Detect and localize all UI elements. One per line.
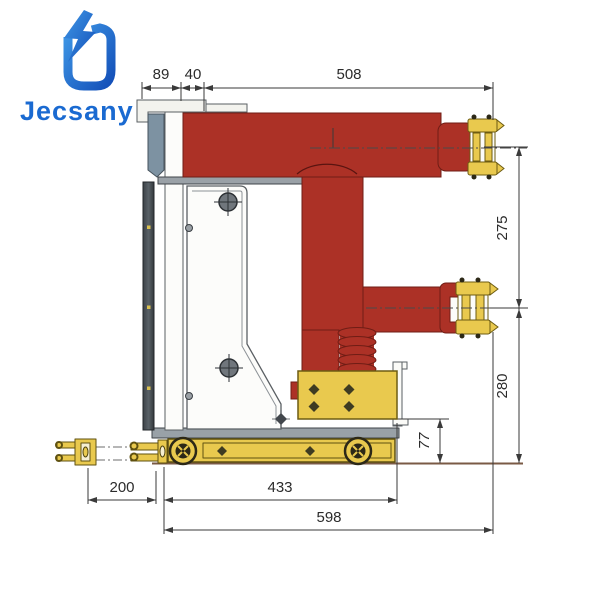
chassis-base (56, 428, 399, 465)
breaker-dimension-drawing: 89 40 508 275 280 77 200 433 598 (0, 0, 600, 600)
screenshot-canvas: Jecsany (0, 0, 600, 600)
dim-40: 40 (185, 66, 202, 83)
dim-200: 200 (109, 479, 134, 496)
dim-598: 598 (316, 509, 341, 526)
bellows (338, 328, 376, 375)
pole-column-lower (302, 330, 339, 372)
dim-275: 275 (494, 215, 511, 240)
latch-hook-detached (56, 439, 96, 465)
latch-hook-attached (131, 440, 173, 463)
dim-508: 508 (336, 66, 361, 83)
pole-lower-arm (363, 287, 448, 332)
pole-column (302, 177, 363, 331)
truck-wheel-right (345, 438, 371, 464)
dim-89: 89 (153, 66, 170, 83)
support-bracket (291, 362, 408, 426)
housing-side-panel (187, 186, 281, 429)
top-strip (206, 104, 247, 112)
dim-280: 280 (494, 373, 511, 398)
vertical-post (165, 100, 183, 430)
insulation-block (148, 114, 164, 177)
truck-wheel-left (170, 438, 196, 464)
bracket-plate (298, 371, 397, 419)
housing-top-plate (158, 177, 303, 184)
dim-77: 77 (416, 432, 433, 449)
dim-433: 433 (267, 479, 292, 496)
pole-upper-arm (183, 113, 441, 177)
